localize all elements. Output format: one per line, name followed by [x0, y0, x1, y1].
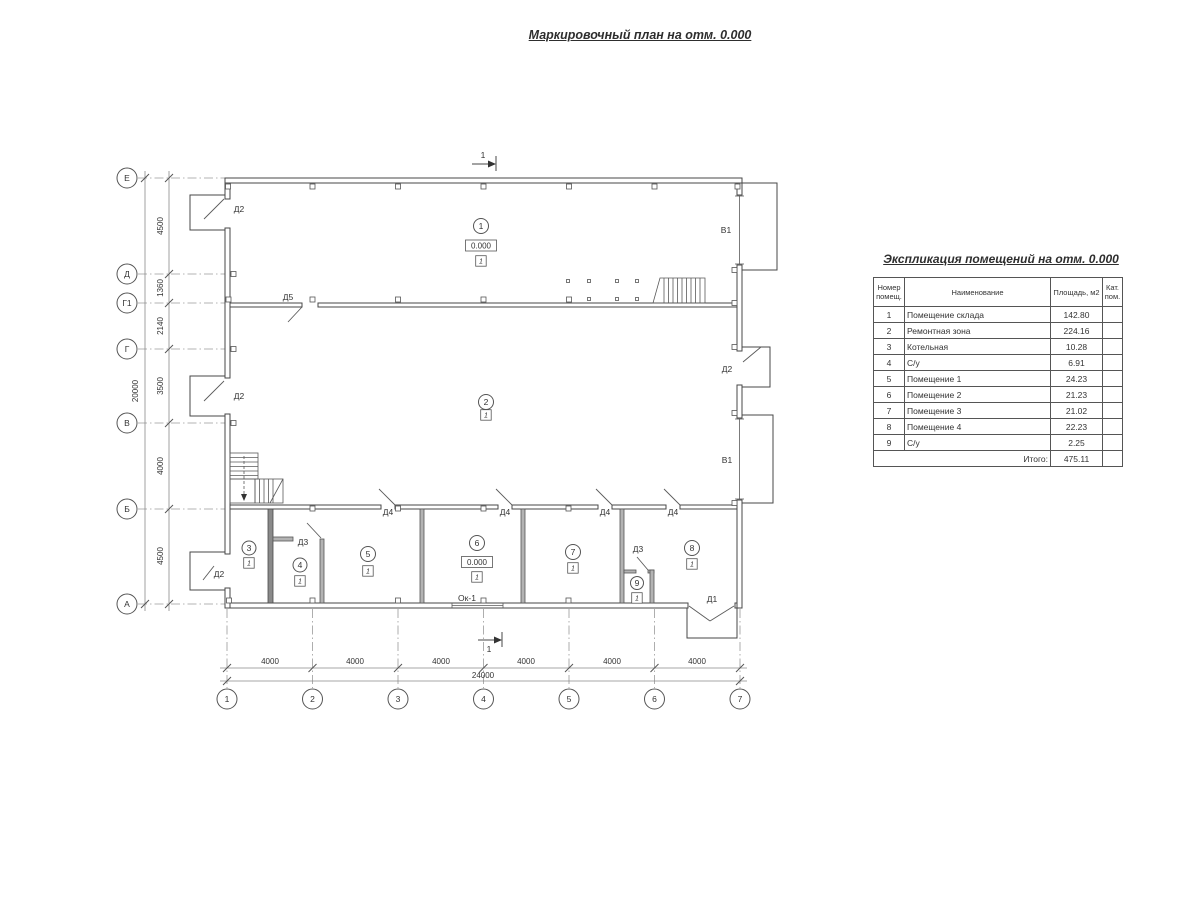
window-label-ok1: Ок-1 — [458, 593, 476, 603]
table-header-row: Номер помещ. Наименование Площадь, м2 Ка… — [874, 278, 1123, 307]
ramp — [653, 278, 705, 303]
axis-label: 4 — [481, 694, 486, 704]
col-header-num: Номер помещ. — [874, 278, 905, 307]
table-row: 1Помещение склада142.80 — [874, 307, 1123, 323]
floor-type-mark: 1 — [475, 575, 479, 582]
dim-bottom: 4000 — [517, 657, 535, 666]
dim-total-left: 20000 — [131, 379, 140, 402]
axis-label: А — [124, 599, 130, 609]
room-name: Помещение 2 — [905, 387, 1051, 403]
door-label-d4: Д4 — [600, 507, 611, 517]
room-cat — [1103, 323, 1123, 339]
room-cat — [1103, 307, 1123, 323]
door-label-d2: Д2 — [234, 204, 245, 214]
drawing-sheet: Маркировочный план на отм. 0.000 20000 — [0, 0, 1200, 900]
table-row: 4С/у6.91 — [874, 355, 1123, 371]
room-cat — [1103, 419, 1123, 435]
room-num: 9 — [874, 435, 905, 451]
dim-bottom: 4000 — [688, 657, 706, 666]
axis-label: 1 — [225, 694, 230, 704]
floor-type-mark: 1 — [247, 561, 251, 568]
door-label-d2: Д2 — [722, 364, 733, 374]
column-dots — [567, 280, 639, 301]
dim-left: 4500 — [156, 217, 165, 235]
staircase — [230, 453, 283, 503]
room-name: Помещение 3 — [905, 403, 1051, 419]
floor-type-mark: 1 — [690, 562, 694, 569]
axis-label: Г — [125, 344, 130, 354]
axis-label: Д — [124, 269, 130, 279]
dim-left: 3500 — [156, 377, 165, 395]
dim-bottom: 4000 — [432, 657, 450, 666]
room-cat — [1103, 355, 1123, 371]
room-name: С/у — [905, 435, 1051, 451]
floor-type-mark: 1 — [298, 579, 302, 586]
room-area: 21.23 — [1051, 387, 1103, 403]
room-num: 2 — [874, 323, 905, 339]
axis-label: 5 — [567, 694, 572, 704]
door-label-d4: Д4 — [500, 507, 511, 517]
room-cat — [1103, 387, 1123, 403]
room-name: С/у — [905, 355, 1051, 371]
axis-label: 3 — [396, 694, 401, 704]
axis-bubbles-bottom: 1 2 3 4 5 6 7 — [217, 689, 750, 709]
door-label-d2: Д2 — [234, 391, 245, 401]
door-label-d1: Д1 — [707, 594, 718, 604]
room-num: 6 — [874, 387, 905, 403]
floor-type-mark: 1 — [484, 413, 488, 420]
floor-type-mark: 1 — [479, 259, 483, 266]
explication-panel: Экспликация помещений на отм. 0.000 Номе… — [865, 252, 1137, 467]
table-row: 2Ремонтная зона224.16 — [874, 323, 1123, 339]
table-row: 7Помещение 321.02 — [874, 403, 1123, 419]
section-mark-top: 1 — [472, 150, 496, 171]
explication-table: Номер помещ. Наименование Площадь, м2 Ка… — [873, 277, 1123, 467]
dim-left: 4500 — [156, 547, 165, 565]
room-number: 8 — [690, 543, 695, 553]
axis-label: Е — [124, 173, 130, 183]
dim-bottom: 4000 — [346, 657, 364, 666]
floor-type-mark: 1 — [366, 569, 370, 576]
col-header-name: Наименование — [905, 278, 1051, 307]
room-number: 5 — [366, 549, 371, 559]
room-area: 21.02 — [1051, 403, 1103, 419]
table-row: 6Помещение 221.23 — [874, 387, 1123, 403]
room-markers: 1 0.000 1 2 1 3 1 4 1 5 1 6 0.000 1 7 1 … — [242, 219, 700, 604]
elevation-mark: 0.000 — [467, 558, 488, 567]
room-number: 3 — [247, 543, 252, 553]
room-name: Помещение склада — [905, 307, 1051, 323]
room-name: Помещение 4 — [905, 419, 1051, 435]
col-header-cat: Кат. пом. — [1103, 278, 1123, 307]
table-total-row: Итого:475.11 — [874, 451, 1123, 467]
dim-bottom: 4000 — [261, 657, 279, 666]
axis-label: 2 — [310, 694, 315, 704]
room-number: 7 — [571, 547, 576, 557]
partition-walls — [268, 509, 654, 603]
door-label-d3: Д3 — [298, 537, 309, 547]
axis-label: 6 — [652, 694, 657, 704]
elevation-mark: 0.000 — [471, 242, 492, 251]
dim-total-bottom: 24000 — [472, 671, 495, 680]
table-row: 9С/у2.25 — [874, 435, 1123, 451]
axis-label: Б — [124, 504, 130, 514]
dim-left: 4000 — [156, 457, 165, 475]
section-mark-bottom: 1 — [478, 632, 502, 654]
floor-type-mark: 1 — [571, 566, 575, 573]
section-label: 1 — [487, 644, 492, 654]
room-area: 224.16 — [1051, 323, 1103, 339]
table-row: 3Котельная10.28 — [874, 339, 1123, 355]
floor-type-mark: 1 — [635, 596, 639, 603]
dim-left: 1360 — [156, 279, 165, 297]
room-name: Помещение 1 — [905, 371, 1051, 387]
room-name: Ремонтная зона — [905, 323, 1051, 339]
room-area: 24.23 — [1051, 371, 1103, 387]
axis-label: 7 — [738, 694, 743, 704]
room-area: 10.28 — [1051, 339, 1103, 355]
room-num: 5 — [874, 371, 905, 387]
dimension-left: 20000 4500 1360 2140 3500 4000 4500 — [131, 171, 173, 611]
total-cat — [1103, 451, 1123, 467]
room-num: 7 — [874, 403, 905, 419]
room-area: 6.91 — [1051, 355, 1103, 371]
room-number: 6 — [475, 538, 480, 548]
dim-left: 2140 — [156, 317, 165, 335]
room-number: 2 — [484, 397, 489, 407]
gate-label-v1: В1 — [721, 225, 732, 235]
left-entry-niches: Д2 Д2 Д2 — [190, 195, 245, 590]
axis-label: В — [124, 418, 130, 428]
room-number: 4 — [298, 560, 303, 570]
room-number: 1 — [479, 221, 484, 231]
door-label-d5: Д5 — [283, 292, 294, 302]
room-area: 142.80 — [1051, 307, 1103, 323]
total-value: 475.11 — [1051, 451, 1103, 467]
room-cat — [1103, 435, 1123, 451]
section-label: 1 — [481, 150, 486, 160]
room-cat — [1103, 403, 1123, 419]
table-row: 8Помещение 422.23 — [874, 419, 1123, 435]
room-cat — [1103, 371, 1123, 387]
room-name: Котельная — [905, 339, 1051, 355]
room-number: 9 — [635, 578, 640, 588]
door-label-d4: Д4 — [668, 507, 679, 517]
explication-title-text: Экспликация помещений на отм. 0.000 — [883, 252, 1119, 266]
door-label-d2: Д2 — [214, 569, 225, 579]
table-row: 5Помещение 124.23 — [874, 371, 1123, 387]
total-label: Итого: — [874, 451, 1051, 467]
room-num: 3 — [874, 339, 905, 355]
explication-title: Экспликация помещений на отм. 0.000 — [865, 252, 1137, 266]
room-num: 8 — [874, 419, 905, 435]
room-num: 4 — [874, 355, 905, 371]
room-num: 1 — [874, 307, 905, 323]
door-label-d4: Д4 — [383, 507, 394, 517]
gate-label-v1: В1 — [722, 455, 733, 465]
room-area: 2.25 — [1051, 435, 1103, 451]
dim-bottom: 4000 — [603, 657, 621, 666]
room-area: 22.23 — [1051, 419, 1103, 435]
room-cat — [1103, 339, 1123, 355]
axis-label: Г1 — [122, 298, 132, 308]
col-header-area: Площадь, м2 — [1051, 278, 1103, 307]
door-label-d3: Д3 — [633, 544, 644, 554]
